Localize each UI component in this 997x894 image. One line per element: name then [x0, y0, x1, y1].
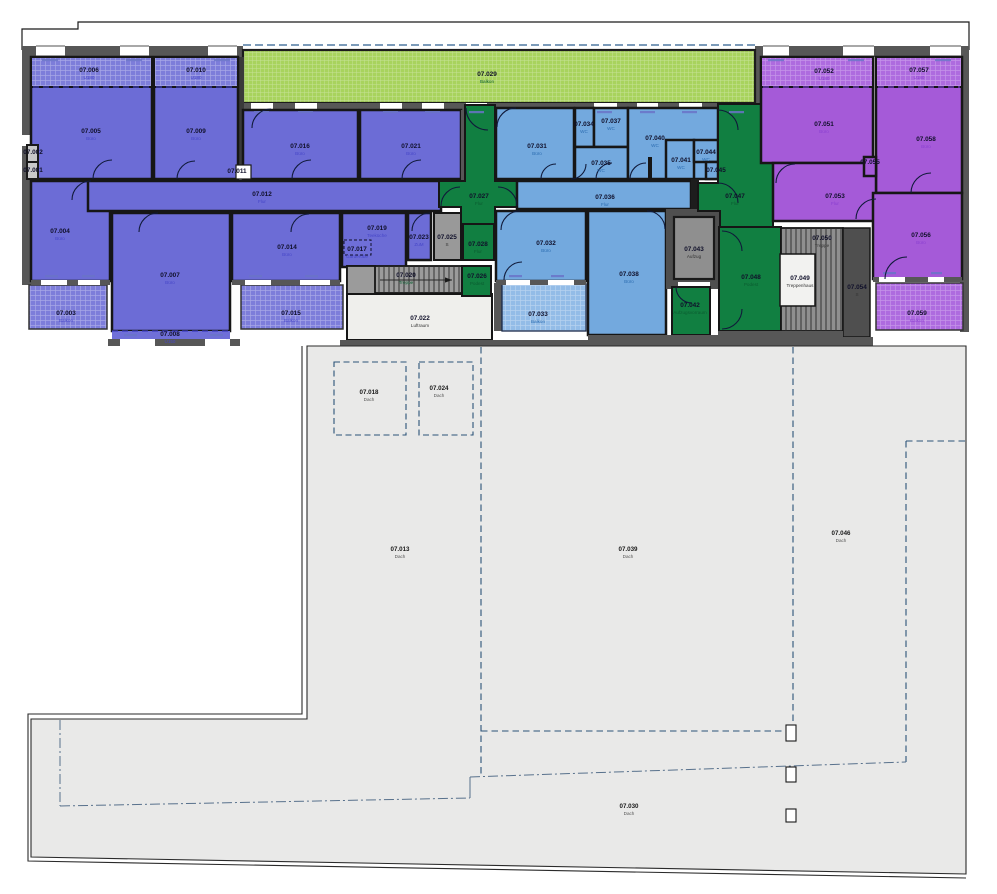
svg-text:Balkon: Balkon: [531, 319, 545, 324]
svg-text:Büro: Büro: [295, 151, 305, 156]
svg-text:07.037: 07.037: [601, 118, 621, 125]
svg-text:07.015: 07.015: [281, 310, 301, 317]
svg-text:07.002: 07.002: [23, 149, 43, 156]
svg-text:07.001: 07.001: [23, 167, 43, 174]
svg-text:07.052: 07.052: [814, 68, 834, 75]
svg-text:07.003: 07.003: [56, 310, 76, 317]
svg-text:Dach: Dach: [836, 538, 847, 543]
svg-text:07.029: 07.029: [477, 71, 497, 78]
svg-text:U180: U180: [84, 75, 95, 80]
svg-text:Treppe: Treppe: [815, 243, 830, 248]
svg-text:07.043: 07.043: [684, 246, 704, 253]
svg-text:Flur: Flur: [831, 201, 839, 206]
svg-text:Büro: Büro: [406, 151, 416, 156]
svg-text:Teeküche: Teeküche: [367, 233, 387, 238]
svg-text:Dach: Dach: [364, 397, 375, 402]
svg-text:07.053: 07.053: [825, 193, 845, 200]
svg-text:WC: WC: [702, 157, 710, 162]
svg-text:U180: U180: [914, 75, 925, 80]
svg-text:Balkon: Balkon: [910, 318, 924, 323]
svg-text:U180: U180: [191, 75, 202, 80]
svg-text:Büro: Büro: [624, 279, 634, 284]
svg-text:Balkon: Balkon: [59, 318, 73, 323]
svg-text:07.040: 07.040: [645, 135, 665, 142]
svg-text:07.030: 07.030: [620, 803, 639, 810]
svg-text:Podest: Podest: [470, 281, 485, 286]
svg-text:Aufzugsvorraum: Aufzugsvorraum: [673, 310, 707, 315]
svg-text:07.022: 07.022: [410, 315, 430, 322]
svg-text:Garderobe: Garderobe: [346, 254, 368, 259]
svg-text:Luftraum: Luftraum: [411, 323, 429, 328]
svg-text:07.026: 07.026: [467, 273, 487, 280]
svg-text:07.059: 07.059: [907, 310, 927, 317]
svg-text:07.056: 07.056: [911, 232, 931, 239]
svg-text:07.050: 07.050: [812, 235, 832, 242]
svg-text:Flur: Flur: [474, 249, 482, 254]
svg-text:07.041: 07.041: [671, 157, 691, 164]
svg-text:07.048: 07.048: [741, 274, 761, 281]
svg-text:S: S: [855, 292, 858, 297]
svg-text:Büro: Büro: [541, 248, 551, 253]
svg-text:07.007: 07.007: [160, 272, 180, 279]
svg-text:Büro: Büro: [916, 240, 926, 245]
svg-text:Balkon: Balkon: [480, 79, 494, 84]
svg-text:Aufzug: Aufzug: [687, 254, 702, 259]
svg-text:07.054: 07.054: [847, 284, 867, 291]
svg-text:07.032: 07.032: [536, 240, 556, 247]
svg-text:07.021: 07.021: [401, 143, 421, 150]
svg-text:WC: WC: [651, 143, 659, 148]
svg-text:07.006: 07.006: [79, 67, 99, 74]
svg-text:07.047: 07.047: [725, 193, 745, 200]
svg-text:07.051: 07.051: [814, 121, 834, 128]
svg-text:07.034: 07.034: [574, 121, 594, 128]
svg-text:07.020: 07.020: [396, 272, 416, 279]
svg-text:07.057: 07.057: [909, 67, 929, 74]
svg-text:Büro: Büro: [86, 136, 96, 141]
svg-text:Büro: Büro: [282, 252, 292, 257]
svg-text:S: S: [445, 242, 448, 247]
svg-text:07.055: 07.055: [860, 159, 880, 166]
svg-text:07.011: 07.011: [227, 168, 247, 175]
svg-text:WC: WC: [607, 126, 615, 131]
svg-text:Flur: Flur: [475, 201, 483, 206]
svg-text:ZuM: ZuM: [414, 242, 423, 247]
svg-text:07.017: 07.017: [347, 246, 367, 253]
svg-text:07.013: 07.013: [391, 546, 410, 553]
svg-text:Flur: Flur: [731, 201, 739, 206]
svg-text:07.033: 07.033: [528, 311, 548, 318]
svg-text:Dach: Dach: [623, 554, 634, 559]
svg-text:07.036: 07.036: [595, 194, 615, 201]
svg-text:07.049: 07.049: [790, 275, 810, 282]
svg-text:07.004: 07.004: [50, 228, 70, 235]
svg-text:07.044: 07.044: [696, 149, 716, 156]
svg-text:Büro: Büro: [819, 129, 829, 134]
svg-text:07.019: 07.019: [367, 225, 387, 232]
svg-text:Treppe: Treppe: [399, 280, 414, 285]
svg-text:07.012: 07.012: [252, 191, 272, 198]
svg-text:07.027: 07.027: [469, 193, 489, 200]
svg-text:Büro: Büro: [532, 151, 542, 156]
svg-text:07.028: 07.028: [468, 241, 488, 248]
svg-text:07.058: 07.058: [916, 136, 936, 143]
svg-text:U180: U180: [819, 76, 830, 81]
svg-text:Flur: Flur: [601, 202, 609, 207]
svg-text:07.039: 07.039: [619, 546, 638, 553]
svg-text:07.008: 07.008: [160, 331, 180, 338]
svg-text:07.014: 07.014: [277, 244, 297, 251]
svg-text:07.038: 07.038: [619, 271, 639, 278]
svg-text:07.025: 07.025: [437, 234, 457, 241]
svg-text:Podest: Podest: [744, 282, 759, 287]
svg-text:WC: WC: [580, 129, 588, 134]
svg-text:Balkon: Balkon: [284, 318, 298, 323]
svg-text:Dach: Dach: [624, 811, 635, 816]
svg-text:Dach: Dach: [395, 554, 406, 559]
svg-text:07.016: 07.016: [290, 143, 310, 150]
svg-text:Flur: Flur: [258, 199, 266, 204]
svg-text:07.005: 07.005: [81, 128, 101, 135]
svg-text:Treppenhaus: Treppenhaus: [787, 283, 815, 288]
svg-text:07.023: 07.023: [409, 234, 429, 241]
svg-text:Büro: Büro: [191, 136, 201, 141]
svg-text:07.024: 07.024: [430, 385, 449, 392]
svg-text:Büro: Büro: [921, 144, 931, 149]
svg-text:07.009: 07.009: [186, 128, 206, 135]
svg-text:07.010: 07.010: [186, 67, 206, 74]
svg-text:07.045: 07.045: [706, 167, 726, 174]
svg-text:Büro: Büro: [55, 236, 65, 241]
svg-text:Büro: Büro: [165, 280, 175, 285]
svg-text:07.046: 07.046: [832, 530, 851, 537]
svg-text:Dach: Dach: [434, 393, 445, 398]
svg-text:WC: WC: [597, 168, 605, 173]
svg-text:07.031: 07.031: [527, 143, 547, 150]
svg-text:U150: U150: [165, 339, 176, 344]
svg-text:WC: WC: [677, 165, 685, 170]
svg-text:07.042: 07.042: [680, 302, 700, 309]
svg-text:07.018: 07.018: [360, 389, 379, 396]
svg-text:07.035: 07.035: [591, 160, 611, 167]
